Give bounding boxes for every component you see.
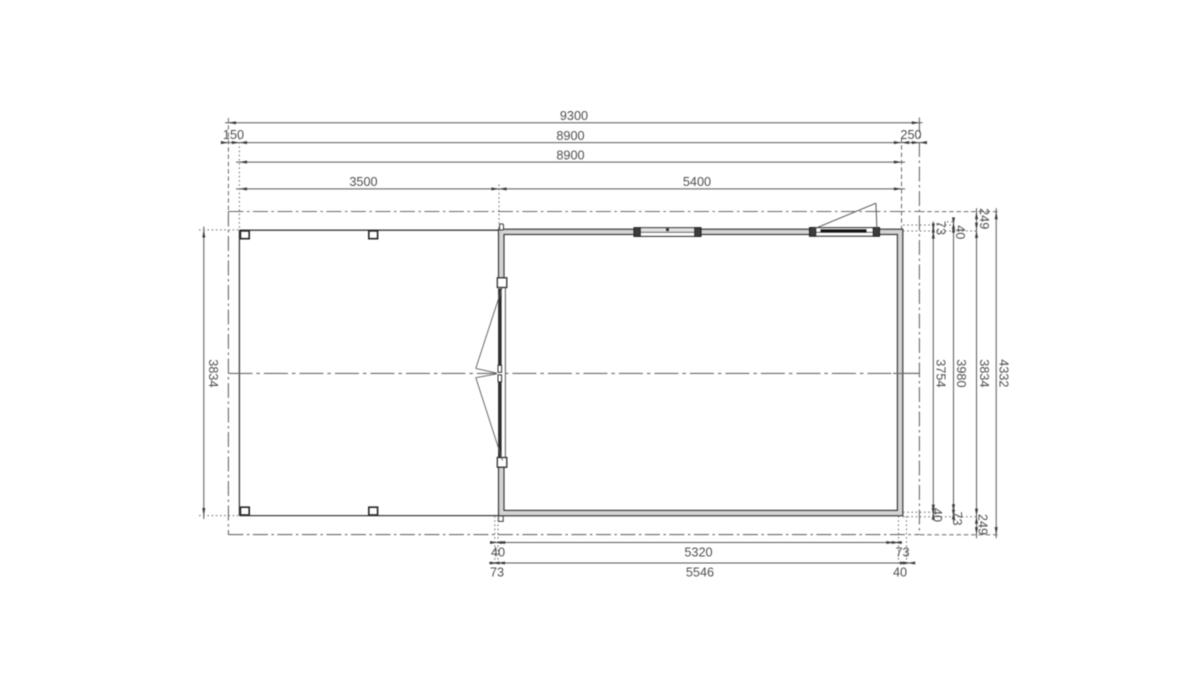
svg-text:8900: 8900 <box>556 149 584 163</box>
svg-text:9300: 9300 <box>560 109 588 123</box>
svg-text:40: 40 <box>491 546 505 560</box>
svg-text:4332: 4332 <box>997 359 1011 387</box>
svg-text:73: 73 <box>950 511 964 525</box>
svg-text:40: 40 <box>893 566 907 580</box>
svg-text:5320: 5320 <box>684 546 712 560</box>
svg-text:250: 250 <box>900 128 921 142</box>
svg-text:3500: 3500 <box>349 175 377 189</box>
svg-text:40: 40 <box>953 225 967 239</box>
svg-text:5546: 5546 <box>686 566 714 580</box>
svg-text:249: 249 <box>977 208 991 229</box>
svg-text:73: 73 <box>895 546 909 560</box>
svg-text:40: 40 <box>930 508 944 522</box>
svg-text:73: 73 <box>934 221 948 235</box>
svg-text:150: 150 <box>223 128 244 142</box>
svg-text:249: 249 <box>975 514 989 535</box>
svg-text:3834: 3834 <box>977 359 991 387</box>
svg-text:3980: 3980 <box>954 359 968 387</box>
svg-text:3754: 3754 <box>934 359 948 387</box>
svg-text:73: 73 <box>490 566 504 580</box>
svg-text:8900: 8900 <box>556 129 584 143</box>
svg-text:3834: 3834 <box>206 359 220 387</box>
svg-text:5400: 5400 <box>683 175 711 189</box>
